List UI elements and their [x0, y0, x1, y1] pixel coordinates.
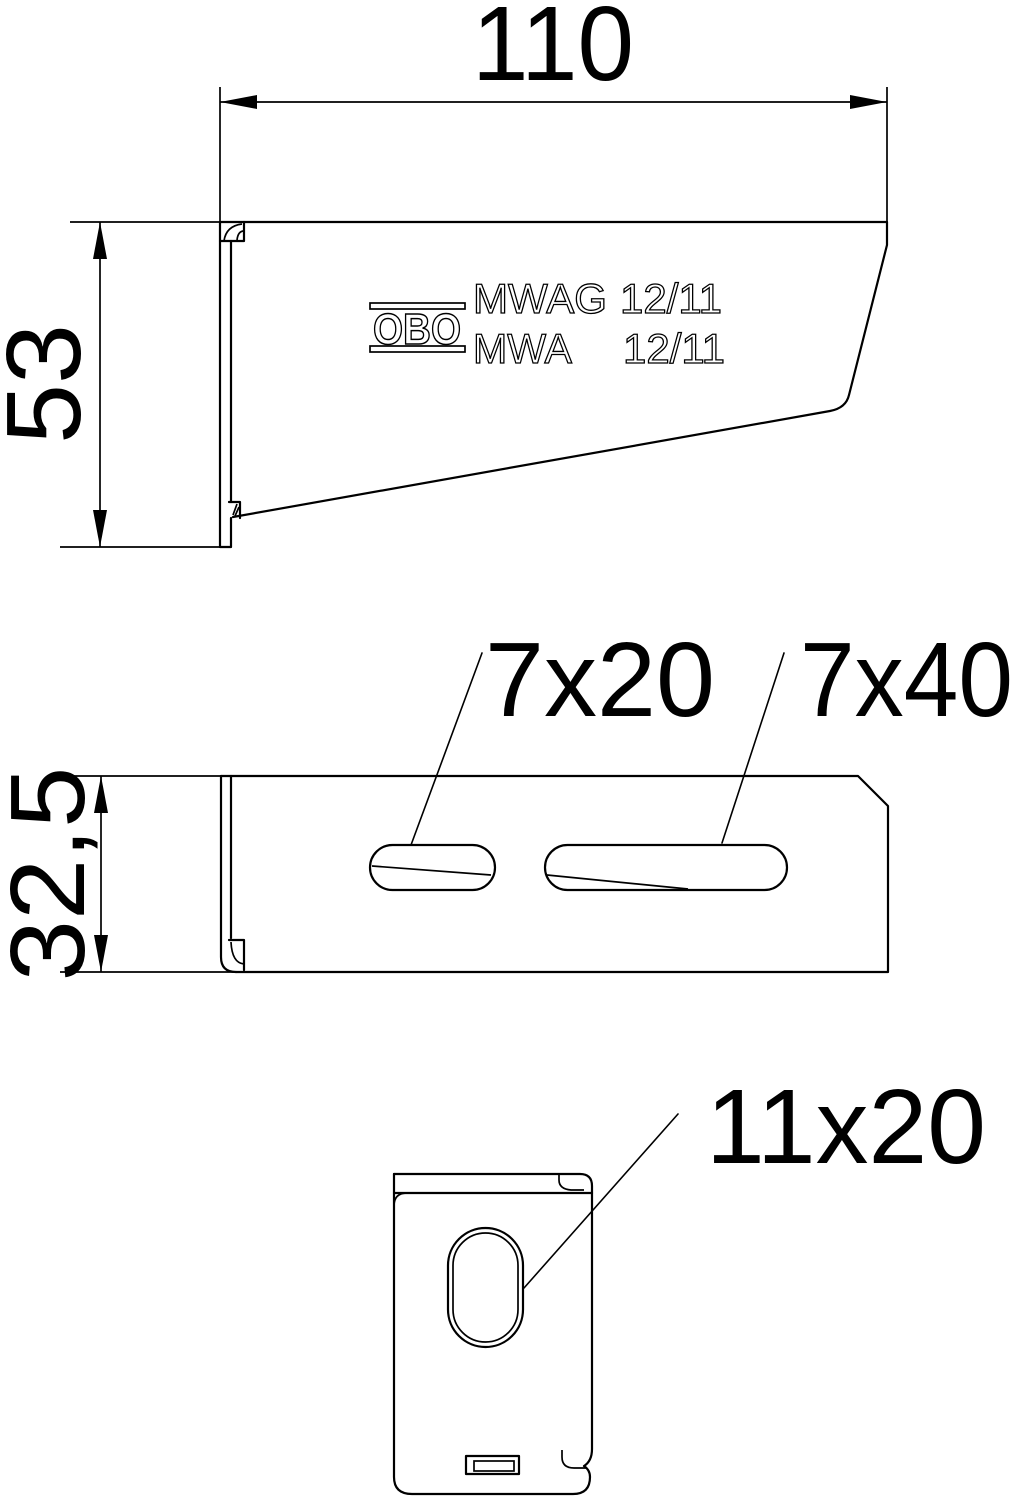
- end-view-outline: [394, 1174, 592, 1494]
- stamp-line2-model: MWA: [473, 325, 572, 372]
- end-view: 11x20: [394, 1068, 986, 1494]
- top-view-body: [221, 776, 888, 972]
- dim-110-label: 110: [472, 0, 634, 103]
- end-body-corner-arc: [394, 1193, 407, 1206]
- side-view-outline: [220, 222, 887, 547]
- side-wall-plate: [220, 222, 231, 547]
- leader-11x20: [524, 1114, 678, 1288]
- slot-7x40-edge-line: [547, 875, 688, 889]
- dim-53: 53: [0, 222, 231, 547]
- leader-7x20: [411, 653, 482, 845]
- end-top-rolled-edge: [559, 1174, 584, 1190]
- end-body: [394, 1174, 592, 1494]
- dim-53-arrow-bottom: [93, 510, 107, 547]
- stamp-line1-size: 12/11: [620, 275, 722, 322]
- stamp-marking: OBO MWAG 12/11 MWA 12/11: [370, 275, 725, 372]
- top-view-left-edge: [221, 776, 236, 972]
- top-view-rolled-edge: [229, 940, 244, 970]
- bracket-dimension-drawing: 110 53: [0, 0, 1018, 1500]
- hole-11x20-inner: [453, 1233, 518, 1342]
- stamp-line2-size: 12/11: [623, 325, 725, 372]
- dim-32-5: 32,5: [0, 767, 236, 982]
- stamp-line1-model: MWAG: [473, 275, 607, 322]
- dim-32-5-label: 32,5: [0, 767, 107, 982]
- slot-7x20-label: 7x20: [485, 621, 715, 739]
- side-view: 110 53: [0, 0, 887, 547]
- side-rolled-edge-top: [220, 222, 244, 241]
- dim-110: 110: [220, 0, 887, 222]
- top-rolled-edge-arc: [231, 942, 244, 964]
- end-top-flange: [394, 1174, 592, 1193]
- obo-logo-text: OBO: [373, 305, 461, 354]
- technical-drawing-page: 110 53: [0, 0, 1018, 1500]
- hole-11x20-label: 11x20: [706, 1068, 986, 1186]
- slot-7x20-edge-line: [372, 866, 491, 875]
- dim-53-arrow-top: [93, 222, 107, 259]
- end-bottom-slot-inner: [474, 1461, 514, 1471]
- dim-110-arrow-left: [220, 95, 257, 109]
- dim-53-label: 53: [0, 324, 103, 444]
- top-view: 32,5 7x20: [0, 621, 1013, 982]
- dim-110-arrow-right: [850, 95, 887, 109]
- top-view-outline: [221, 776, 888, 972]
- rolled-edge-bottom-detail: [233, 504, 239, 516]
- hole-label-group: 11x20: [524, 1068, 986, 1288]
- leader-7x40: [722, 653, 784, 843]
- obo-logo: OBO: [370, 303, 465, 354]
- slot-labels: 7x20 7x40: [411, 621, 1013, 845]
- slot-7x40-label: 7x40: [800, 621, 1013, 739]
- slot-7x40: [545, 845, 787, 890]
